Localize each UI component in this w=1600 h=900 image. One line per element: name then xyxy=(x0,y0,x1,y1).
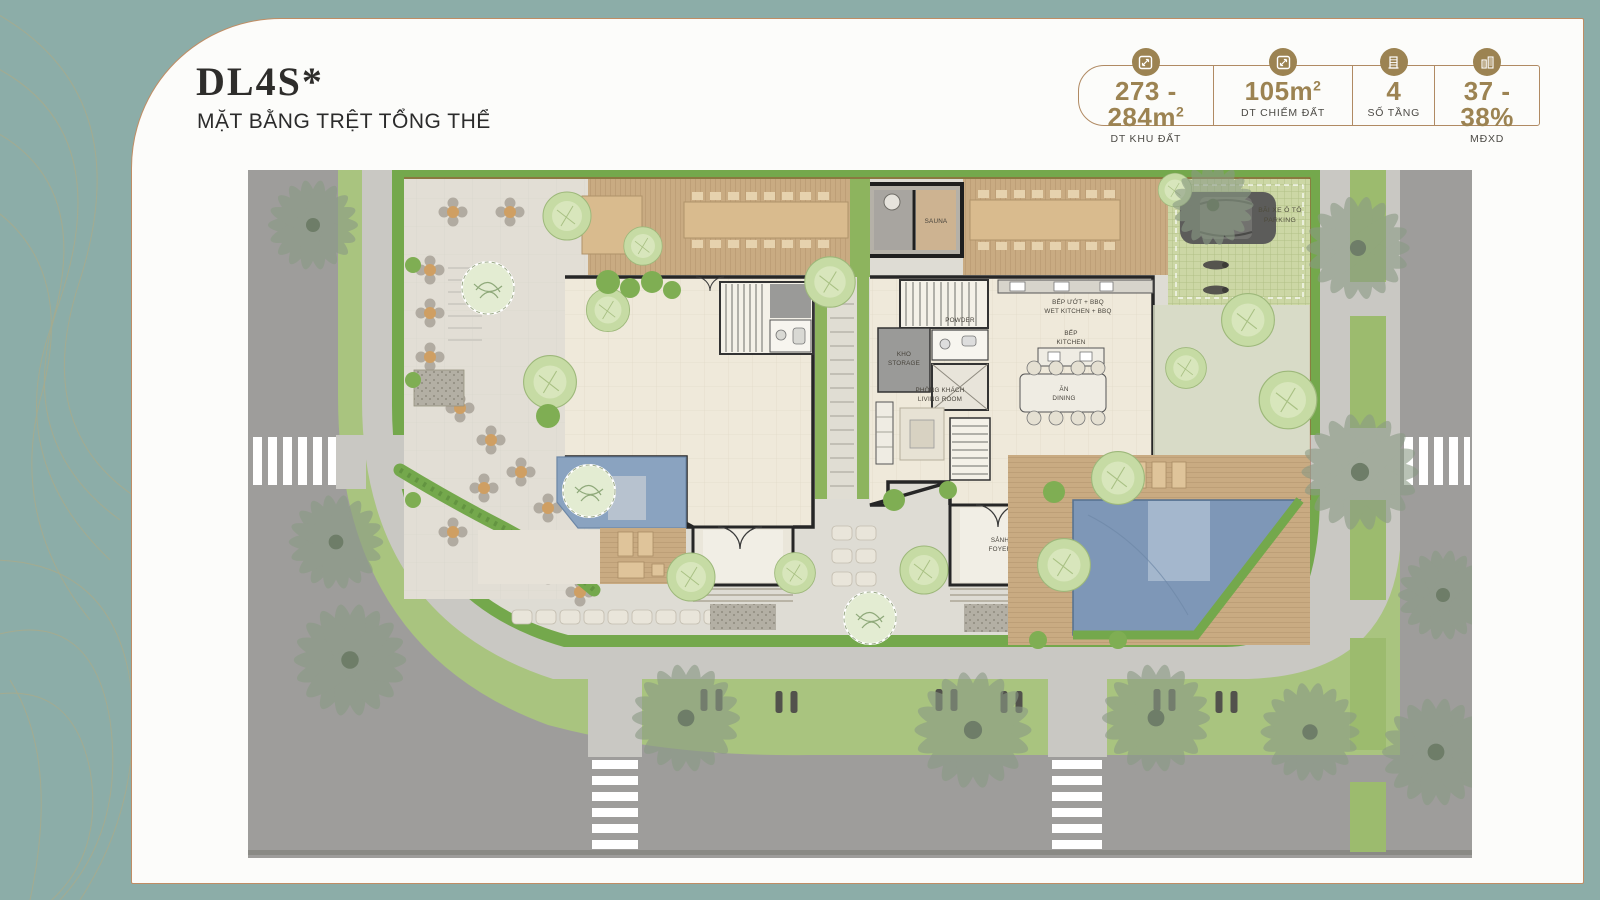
page-title: DL4S* xyxy=(196,58,324,105)
stat-density: 37 - 38% MĐXD xyxy=(1434,66,1539,125)
svg-text:STORAGE: STORAGE xyxy=(888,360,920,367)
stat-label: SỐ TẦNG xyxy=(1353,107,1434,119)
stat-label: DT CHIẾM ĐẤT xyxy=(1214,107,1353,119)
density-icon xyxy=(1473,48,1501,76)
stat-value: 4 xyxy=(1386,76,1401,106)
motorbike xyxy=(1203,261,1229,270)
stat-footprint-area: 105m2 DT CHIẾM ĐẤT xyxy=(1213,66,1353,125)
stat-floors: 4 SỐ TẦNG xyxy=(1352,66,1434,125)
powder-label: POWDER xyxy=(945,317,975,324)
stat-value: 105m xyxy=(1245,76,1314,106)
page-background: DL4S* MẶT BẰNG TRỆT TỔNG THỂ 273 - 284m2… xyxy=(0,0,1600,900)
villa-a-stairs xyxy=(720,282,813,354)
parking-label: BÃI XE Ô TÔ xyxy=(1258,205,1302,214)
area-icon xyxy=(1132,48,1160,76)
stats-bar: 273 - 284m2 DT KHU ĐẤT 105m2 DT CHIẾM ĐẤ… xyxy=(1078,65,1540,126)
storage-label: KHO xyxy=(897,351,911,358)
svg-text:DINING: DINING xyxy=(1052,395,1075,402)
floors-icon xyxy=(1380,48,1408,76)
stat-label: DT KHU ĐẤT xyxy=(1079,133,1213,145)
svg-text:KITCHEN: KITCHEN xyxy=(1056,339,1085,346)
foyer-label: SẢNH xyxy=(991,535,1010,544)
page-subtitle: MẶT BẰNG TRỆT TỔNG THỂ xyxy=(197,110,491,134)
villa-a-pond xyxy=(557,457,686,528)
stat-value: 37 - 38% xyxy=(1460,76,1514,132)
site-plan: SAUNA BÃI XE Ô TÔ PARKING xyxy=(248,170,1472,858)
stat-label: MĐXD xyxy=(1435,133,1539,145)
area-icon xyxy=(1269,48,1297,76)
svg-text:WET KITCHEN + BBQ: WET KITCHEN + BBQ xyxy=(1044,308,1111,315)
svg-text:PARKING: PARKING xyxy=(1264,217,1296,224)
stat-value: 273 - 284m xyxy=(1107,76,1176,132)
sauna-building: SAUNA xyxy=(868,184,962,256)
sauna-label: SAUNA xyxy=(925,218,948,225)
stat-land-area: 273 - 284m2 DT KHU ĐẤT xyxy=(1079,66,1213,125)
storage-room: KHO STORAGE xyxy=(878,328,930,392)
motorbike xyxy=(1203,286,1229,295)
living-label: PHÒNG KHÁCH xyxy=(915,385,964,394)
dining-label: ĂN xyxy=(1059,384,1068,393)
svg-text:LIVING ROOM: LIVING ROOM xyxy=(918,396,962,403)
